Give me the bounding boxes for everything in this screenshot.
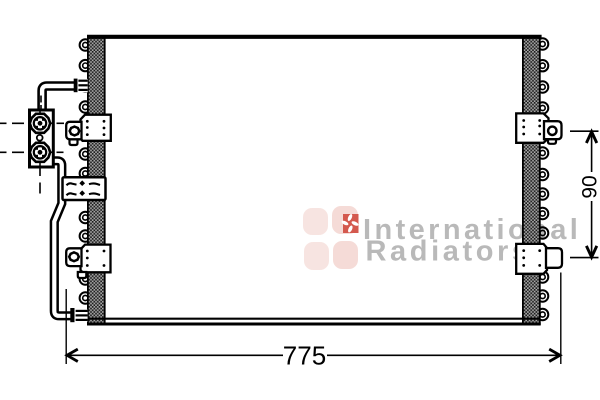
svg-text:90: 90 bbox=[579, 175, 600, 198]
svg-text:Radiators: Radiators bbox=[366, 236, 532, 268]
svg-text:775: 775 bbox=[283, 341, 326, 371]
